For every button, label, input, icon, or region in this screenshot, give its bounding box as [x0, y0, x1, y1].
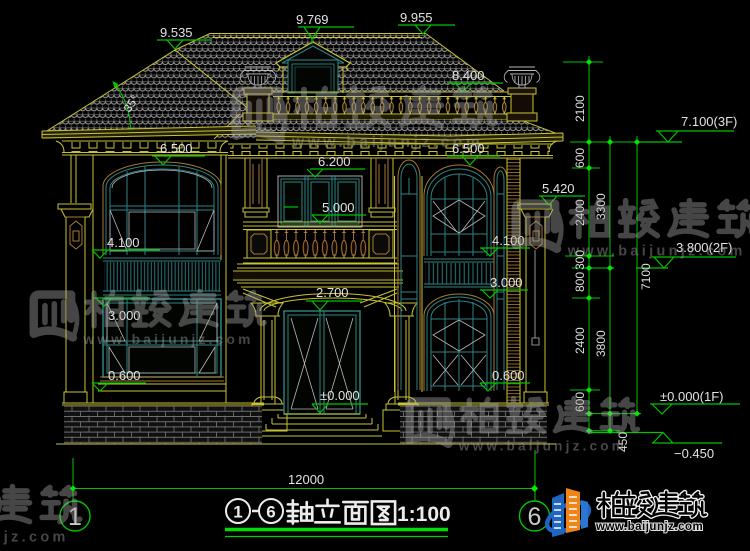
svg-text:6: 6 [266, 503, 275, 522]
svg-text:2400: 2400 [573, 327, 587, 354]
svg-text:9.955: 9.955 [400, 10, 433, 25]
svg-text:2100: 2100 [573, 95, 587, 122]
svg-text:3800: 3800 [594, 330, 608, 357]
svg-text:2.700: 2.700 [316, 285, 349, 300]
svg-text:1: 1 [233, 503, 242, 522]
svg-text:0.600: 0.600 [108, 368, 141, 383]
svg-text:±0.000: ±0.000 [320, 388, 360, 403]
svg-text:6.200: 6.200 [318, 154, 351, 169]
svg-text:5.000: 5.000 [322, 200, 355, 215]
svg-text:600: 600 [573, 148, 587, 168]
svg-text:0.600: 0.600 [492, 368, 525, 383]
svg-text:1:100: 1:100 [397, 503, 451, 526]
svg-text:6: 6 [528, 503, 542, 531]
svg-text:4.100: 4.100 [107, 235, 140, 250]
svg-text:9.769: 9.769 [296, 12, 329, 27]
svg-text:www.baijunjz.com: www.baijunjz.com [595, 521, 703, 533]
svg-text:5.420: 5.420 [542, 181, 575, 196]
svg-text:6.500: 6.500 [160, 141, 193, 156]
svg-text:3.000: 3.000 [490, 275, 523, 290]
svg-text:−0.450: −0.450 [674, 446, 714, 461]
svg-text:9.535: 9.535 [160, 25, 193, 40]
svg-text:±0.000(1F): ±0.000(1F) [660, 389, 724, 404]
svg-text:800: 800 [573, 272, 587, 292]
svg-text:7.100(3F): 7.100(3F) [681, 114, 737, 129]
svg-text:12000: 12000 [288, 472, 324, 487]
svg-text:8.400: 8.400 [452, 68, 485, 83]
svg-text:7100: 7100 [639, 263, 653, 290]
